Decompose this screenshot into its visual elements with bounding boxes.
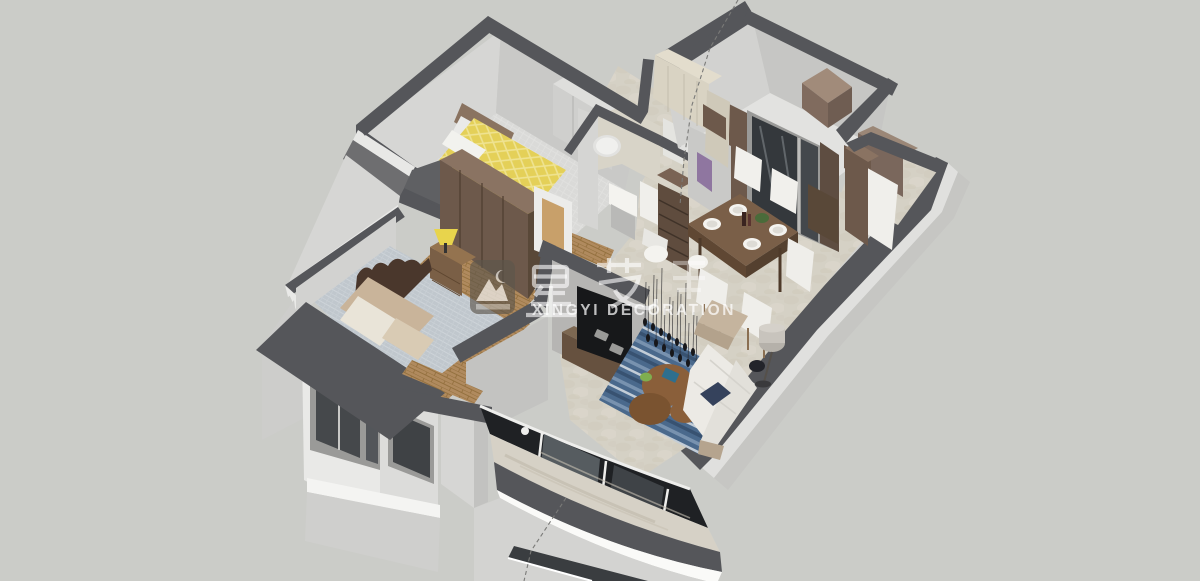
svg-text:XINGYI DECORATION: XINGYI DECORATION	[532, 302, 736, 319]
